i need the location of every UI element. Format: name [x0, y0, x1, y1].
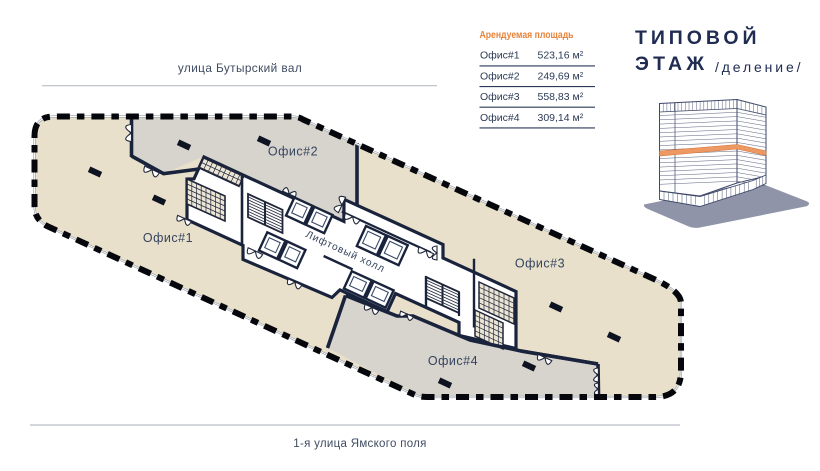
svg-text:309,14 м²: 309,14 м² — [538, 112, 584, 124]
svg-text:улица Бутырский вал: улица Бутырский вал — [178, 61, 302, 75]
svg-text:Арендуемая площадь: Арендуемая площадь — [480, 29, 574, 41]
svg-text:1-я улица Ямского поля: 1-я улица Ямского поля — [293, 438, 426, 450]
svg-text:Офис#3: Офис#3 — [515, 257, 565, 271]
svg-text:Офис#1: Офис#1 — [480, 50, 520, 62]
svg-text:Офис#2: Офис#2 — [480, 70, 520, 82]
svg-text:558,83 м²: 558,83 м² — [538, 91, 584, 103]
svg-text:/деление/: /деление/ — [715, 59, 801, 75]
svg-text:523,16 м²: 523,16 м² — [538, 50, 584, 62]
svg-text:ЭТАЖ: ЭТАЖ — [635, 53, 704, 75]
svg-text:Офис#4: Офис#4 — [480, 112, 520, 124]
svg-text:Офис#4: Офис#4 — [428, 354, 478, 368]
svg-text:249,69 м²: 249,69 м² — [538, 70, 584, 82]
svg-text:Офис#3: Офис#3 — [480, 91, 520, 103]
svg-text:Офис#2: Офис#2 — [268, 145, 318, 159]
svg-text:Офис#1: Офис#1 — [143, 231, 193, 245]
svg-text:ТИПОВОЙ: ТИПОВОЙ — [635, 25, 757, 49]
